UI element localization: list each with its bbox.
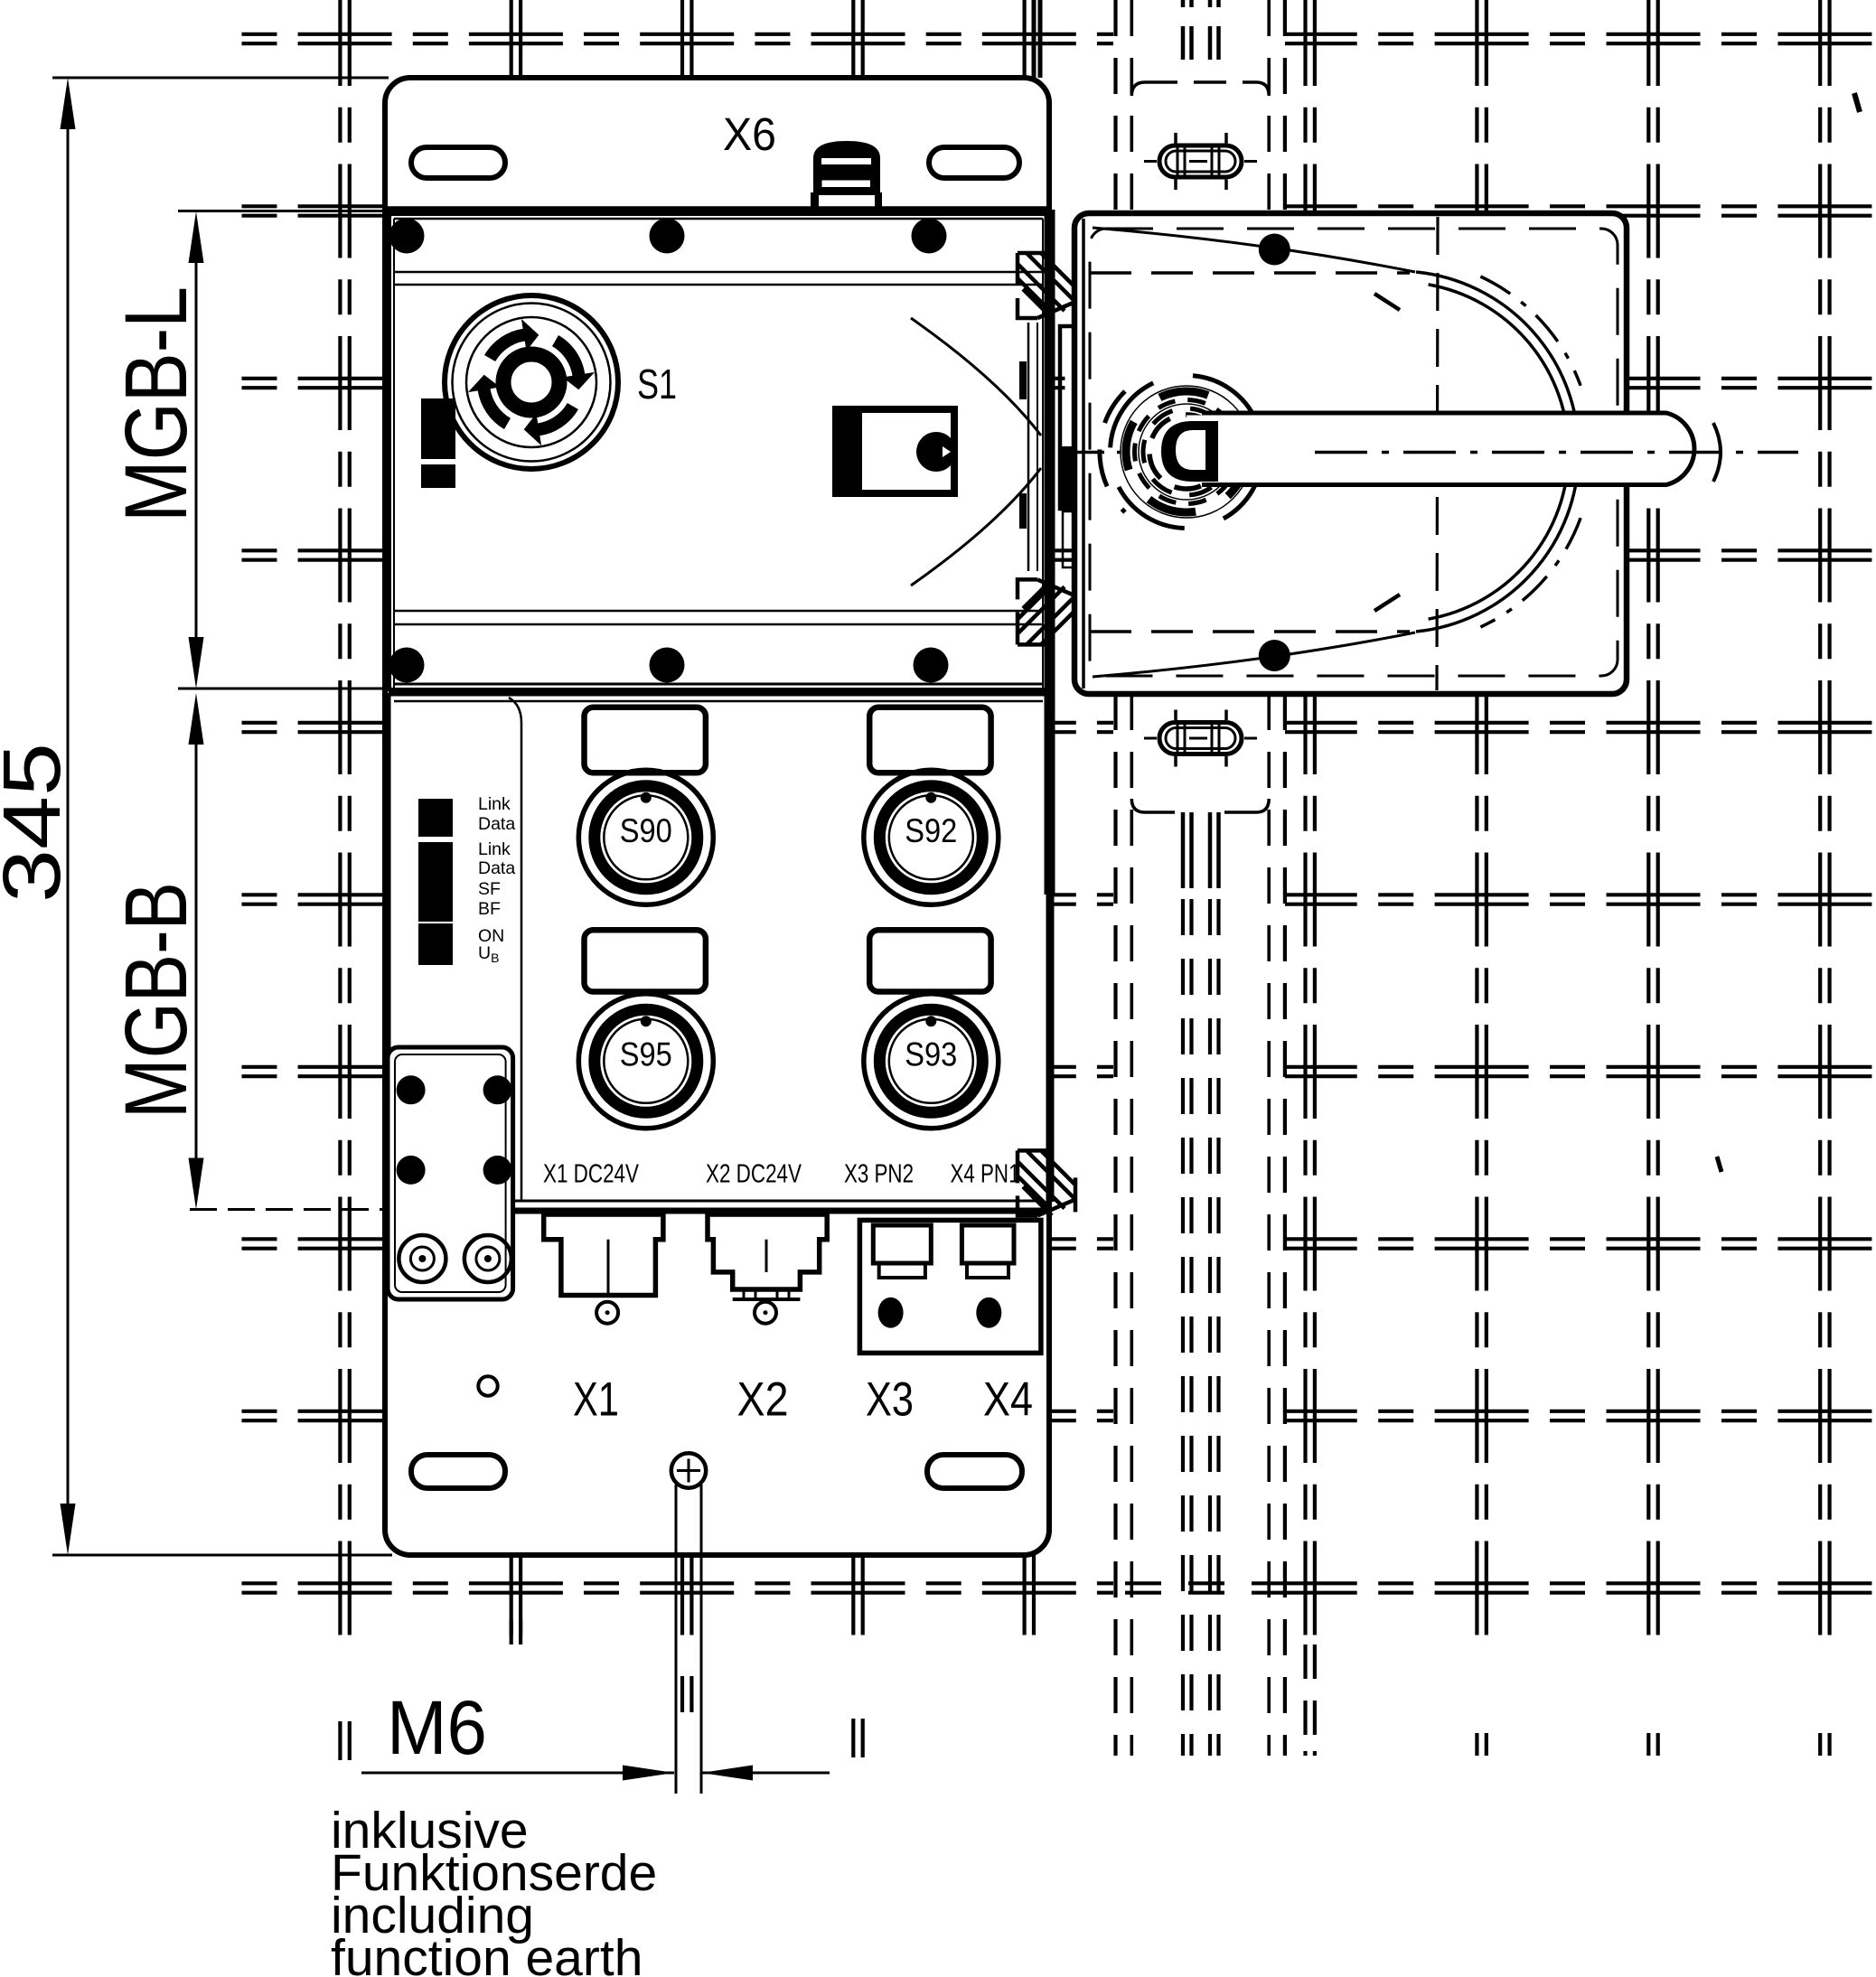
svg-text:S95: S95	[620, 1036, 672, 1073]
svg-text:Link: Link	[478, 794, 511, 814]
svg-text:X2 DC24V: X2 DC24V	[706, 1160, 802, 1189]
svg-text:X1: X1	[573, 1373, 619, 1427]
svg-text:Link: Link	[478, 839, 511, 859]
svg-text:X3: X3	[866, 1373, 914, 1427]
svg-text:Data: Data	[478, 814, 515, 834]
svg-text:BF: BF	[478, 899, 501, 919]
svg-text:MGB-L: MGB-L	[107, 286, 205, 522]
svg-text:X4 PN1: X4 PN1	[951, 1160, 1020, 1189]
svg-text:M6: M6	[387, 1685, 487, 1770]
svg-text:S93: S93	[905, 1036, 957, 1073]
svg-text:function earth: function earth	[331, 1929, 643, 1977]
svg-text:X3 PN2: X3 PN2	[844, 1160, 914, 1189]
svg-text:X1 DC24V: X1 DC24V	[543, 1160, 639, 1189]
svg-text:X4: X4	[983, 1373, 1033, 1427]
svg-text:X2: X2	[737, 1373, 789, 1427]
svg-text:S1: S1	[637, 361, 677, 408]
svg-text:S90: S90	[620, 812, 672, 849]
svg-text:MGB-B: MGB-B	[107, 882, 205, 1119]
svg-text:X6: X6	[723, 108, 776, 160]
svg-text:Data: Data	[478, 858, 515, 878]
svg-text:SF: SF	[478, 879, 501, 899]
svg-text:S92: S92	[905, 812, 957, 849]
svg-text:345: 345	[0, 743, 78, 903]
